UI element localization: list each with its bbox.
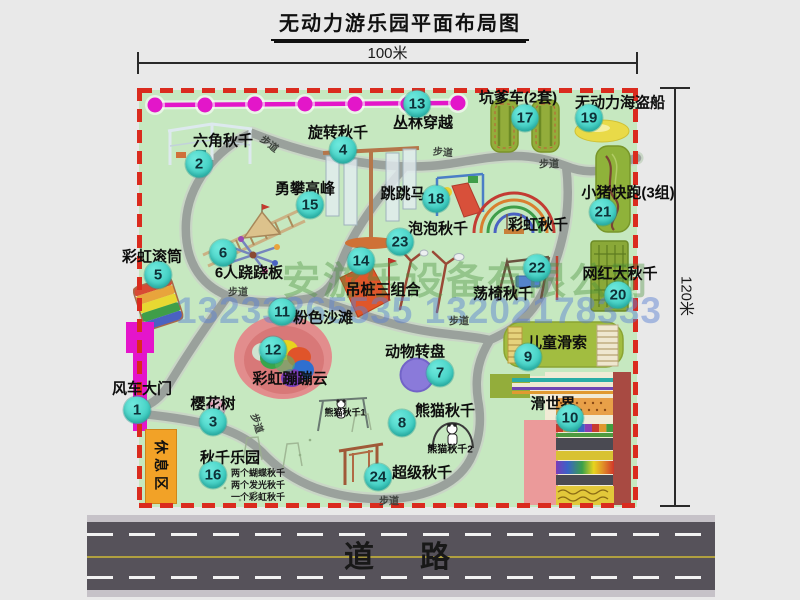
badge-jumping-horse: 18 <box>423 186 450 213</box>
badge-slide-world: 10 <box>557 405 584 432</box>
badge-jungle-crossing: 13 <box>404 91 431 118</box>
badge-rotating-swing: 4 <box>330 137 357 164</box>
swing-park-note-3: 一个彩虹秋千 <box>231 490 285 503</box>
badge-windmill-gate: 1 <box>124 397 151 424</box>
badge-swing-park: 16 <box>200 462 227 489</box>
label-rainbow-swing: 彩虹秋千 <box>508 214 568 235</box>
badge-pit-car: 17 <box>512 105 539 132</box>
label-panda-swing: 熊猫秋千 <box>415 400 475 421</box>
badge-climbing-peak: 15 <box>297 192 324 219</box>
badge-rainbow-roller: 5 <box>145 262 172 289</box>
rest-area-label: 休息区 <box>151 440 171 494</box>
badge-cherry-tree: 3 <box>200 409 227 436</box>
map-border-right <box>633 88 638 508</box>
badge-piggy-run: 21 <box>590 199 617 226</box>
label-pink-beach: 粉色沙滩 <box>293 307 353 328</box>
badge-seesaw: 6 <box>210 240 237 267</box>
label-swing-chair: 荡椅秋千 <box>473 283 533 304</box>
badge-kids-zipline: 9 <box>515 344 542 371</box>
badge-hexagon-swing: 2 <box>186 151 213 178</box>
label-hanging-pile: 吊桩三组合 <box>345 279 420 300</box>
label-super-swing: 超级秋千 <box>392 462 452 483</box>
badge-pirate-ship: 19 <box>576 105 603 132</box>
badge-bubble-swing: 23 <box>387 229 414 256</box>
badge-swing-chair: 22 <box>524 255 551 282</box>
label-windmill-gate: 风车大门 <box>112 378 172 399</box>
walkway-label: 步道 <box>449 313 469 328</box>
page-title: 无动力游乐园平面布局图 <box>271 7 529 41</box>
page: 无动力游乐园平面布局图 100米 120米 <box>0 0 800 600</box>
badge-pink-beach: 11 <box>269 299 296 326</box>
badge-rainbow-cloud: 12 <box>260 337 287 364</box>
walkway-label: 步道 <box>539 156 559 171</box>
label-hexagon-swing: 六角秋千 <box>193 130 253 151</box>
badge-animal-turntable: 7 <box>427 360 454 387</box>
badge-super-swing: 24 <box>365 464 392 491</box>
label-panda-swing-1: 熊猫秋千1 <box>324 406 365 419</box>
badge-big-swing: 20 <box>605 282 632 309</box>
label-jumping-horse: 跳跳马 <box>380 183 425 204</box>
label-rainbow-cloud: 彩虹蹦蹦云 <box>252 368 327 389</box>
map-border-left <box>137 88 142 508</box>
badge-panda-swing: 8 <box>389 410 416 437</box>
walkway-label: 步道 <box>228 284 248 299</box>
label-bubble-swing: 泡泡秋千 <box>408 218 468 239</box>
label-big-swing: 网红大秋千 <box>582 263 657 284</box>
label-pit-car: 坑爹车(2套) <box>479 87 557 108</box>
walkway-label: 步道 <box>379 493 399 508</box>
badge-hanging-pile: 14 <box>348 248 375 275</box>
rest-area: 休息区 <box>145 429 177 504</box>
label-panda-swing-2: 熊猫秋千2 <box>427 441 473 456</box>
map-border-top <box>139 88 637 93</box>
walkway-label: 步道 <box>432 143 453 160</box>
label-animal-turntable: 动物转盘 <box>385 341 445 362</box>
